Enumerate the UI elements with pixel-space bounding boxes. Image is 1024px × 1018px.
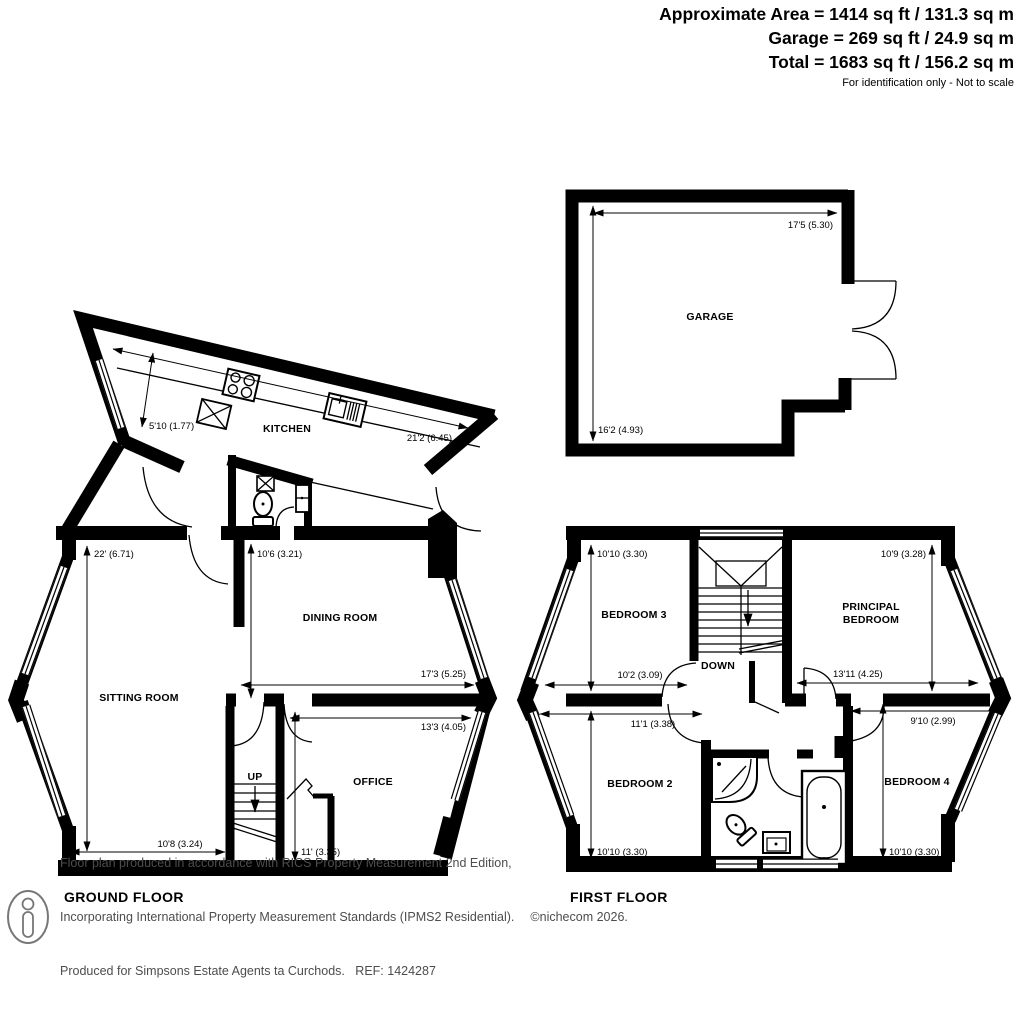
garage-doors bbox=[851, 281, 896, 379]
footer-line2: Incorporating International Property Mea… bbox=[60, 910, 514, 924]
stairs-up-label: UP bbox=[248, 771, 263, 783]
office-width-dim: 13'3 (4.05) bbox=[421, 722, 466, 733]
garage-depth-dim: 16'2 (4.93) bbox=[598, 425, 643, 436]
bedroom4-width-dim: 9'10 (2.99) bbox=[910, 716, 955, 727]
principal-bedroom-label-line2: BEDROOM bbox=[843, 614, 899, 626]
copyright-text: ©nichecom 2026. bbox=[530, 910, 627, 924]
kitchen-label: KITCHEN bbox=[263, 423, 311, 435]
kitchen-width-dim: 5'10 (1.77) bbox=[149, 421, 194, 432]
principal-bedroom-width-dim: 13'11 (4.25) bbox=[833, 669, 883, 680]
garage-width-dim: 17'5 (5.30) bbox=[788, 220, 833, 231]
garage-plan: GARAGE 17'5 (5.30) 16'2 (4.93) bbox=[572, 190, 896, 450]
dining-room-depth-dim: 10'6 (3.21) bbox=[257, 549, 302, 560]
kitchen-skylight-icon bbox=[197, 399, 232, 429]
dining-room-width-dim: 17'3 (5.25) bbox=[421, 669, 466, 680]
footer-line3: Produced for Simpsons Estate Agents ta C… bbox=[60, 962, 628, 980]
dining-room-label: DINING ROOM bbox=[303, 612, 378, 624]
person-icon bbox=[5, 889, 51, 945]
principal-bedroom-depth-dim: 10'9 (3.28) bbox=[881, 549, 926, 560]
bathroom-toilet-icon bbox=[721, 810, 757, 846]
garage-label: GARAGE bbox=[686, 311, 733, 323]
footer-text: Floor plan produced in accordance with R… bbox=[60, 818, 628, 1016]
bedroom4-label: BEDROOM 4 bbox=[884, 776, 949, 788]
footer: Floor plan produced in accordance with R… bbox=[5, 818, 628, 1016]
bedroom3-label: BEDROOM 3 bbox=[601, 609, 666, 621]
basin-icon bbox=[763, 832, 790, 853]
wc-cupboard-icon bbox=[296, 485, 309, 512]
bedroom3-width-dim: 10'2 (3.09) bbox=[617, 670, 662, 681]
toilet-icon bbox=[253, 492, 273, 526]
office-label: OFFICE bbox=[353, 776, 393, 788]
sitting-room-label: SITTING ROOM bbox=[99, 692, 178, 704]
bath-icon bbox=[802, 771, 846, 866]
wc-skylight-icon bbox=[257, 476, 274, 491]
bedroom2-width-dim: 11'1 (3.38) bbox=[631, 719, 675, 730]
bedroom2-label: BEDROOM 2 bbox=[607, 778, 672, 790]
principal-bedroom-label-line1: PRINCIPAL bbox=[842, 601, 900, 613]
stairs-down-label: DOWN bbox=[701, 660, 735, 672]
stairs-down bbox=[698, 547, 786, 655]
bedroom3-depth-dim: 10'10 (3.30) bbox=[597, 549, 647, 560]
hob-icon bbox=[222, 369, 259, 402]
shower-icon bbox=[712, 757, 757, 802]
sink-icon bbox=[324, 393, 367, 427]
sitting-room-depth-dim: 22' (6.71) bbox=[94, 549, 134, 560]
bedroom4-depth-dim: 10'10 (3.30) bbox=[889, 847, 939, 858]
floorplan-page: Approximate Area = 1414 sq ft / 131.3 sq… bbox=[0, 0, 1024, 1018]
kitchen-length-dim: 21'2 (6.45) bbox=[407, 433, 452, 444]
footer-line1: Floor plan produced in accordance with R… bbox=[60, 854, 628, 872]
